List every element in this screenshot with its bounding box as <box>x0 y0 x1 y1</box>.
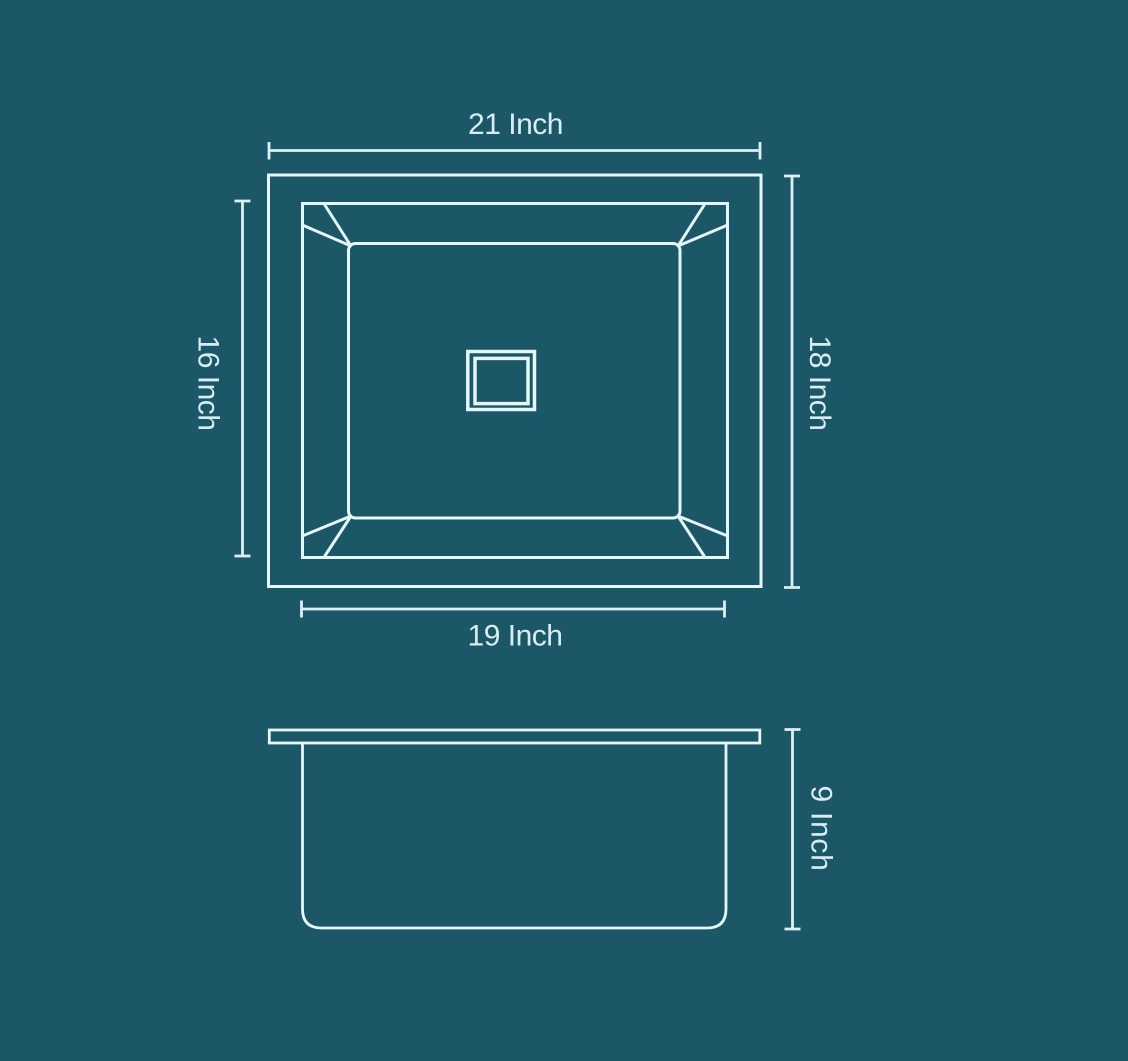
svg-text:21 Inch: 21 Inch <box>468 108 563 141</box>
svg-text:9 Inch: 9 Inch <box>805 786 838 872</box>
svg-text:18 Inch: 18 Inch <box>803 336 836 431</box>
svg-text:16 Inch: 16 Inch <box>192 336 225 431</box>
svg-text:19 Inch: 19 Inch <box>468 620 563 653</box>
